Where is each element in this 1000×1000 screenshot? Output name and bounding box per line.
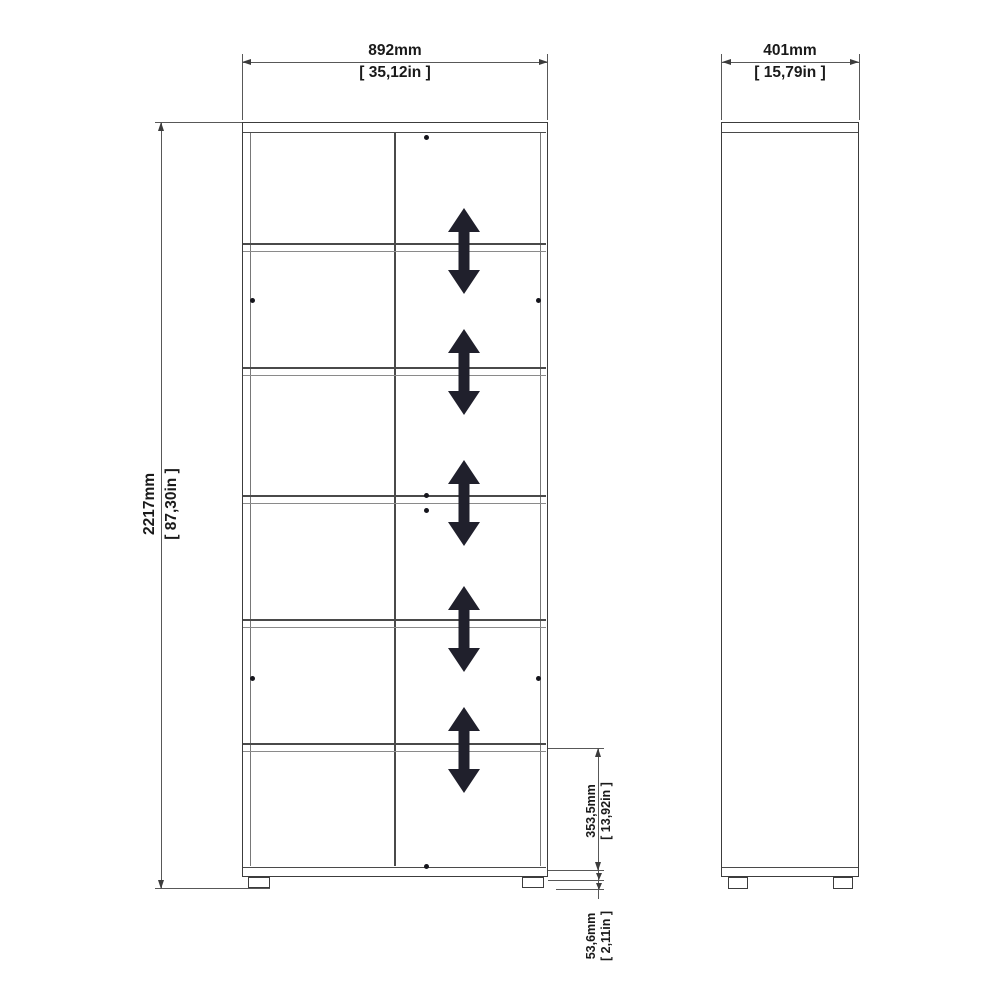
height-label: 2217mm [ 87,30in ] (139, 468, 183, 540)
shelf-line (243, 743, 546, 745)
adjustable-shelf-arrow-icon (446, 460, 482, 546)
dimension-line (722, 62, 859, 63)
shelf-line (243, 251, 546, 252)
extension-line (155, 122, 242, 123)
shelf-line (243, 375, 546, 376)
side-view-outline (721, 122, 859, 877)
height-in-label: [ 87,30in ] (161, 468, 183, 540)
front-bottom-panel-line (243, 867, 546, 869)
shelf-line (243, 243, 546, 245)
shelf-pin-dot (424, 864, 429, 869)
depth-in-label: [ 15,79in ] (690, 65, 890, 81)
dimension-arrowhead (595, 862, 601, 871)
shelf-line (243, 627, 546, 628)
width-in-label: [ 35,12in ] (295, 65, 495, 81)
shelf-line (243, 619, 546, 621)
dimension-line (242, 62, 548, 63)
shelf-pin-dot (250, 676, 255, 681)
side-back-foot (833, 877, 853, 889)
dimension-arrowhead (539, 59, 548, 65)
dimension-drawing: 892mm [ 35,12in ] 401mm [ 15,79in ] 2217… (0, 0, 1000, 1000)
shelf-pin-dot (424, 493, 429, 498)
side-top-panel-line (722, 132, 858, 133)
dimension-arrowhead (595, 748, 601, 757)
shelf-spacing-in-label: [ 13,92in ] (599, 782, 614, 840)
shelf-pin-dot (424, 508, 429, 513)
shelf-line (243, 751, 546, 752)
depth-mm-label: 401mm (690, 43, 890, 59)
shelf-line (243, 503, 546, 504)
dimension-arrowhead (158, 880, 164, 889)
shelf-pin-dot (250, 298, 255, 303)
adjustable-shelf-arrow-icon (446, 586, 482, 672)
dimension-arrowhead (596, 873, 602, 880)
adjustable-shelf-arrow-icon (446, 208, 482, 294)
shelf-line (243, 495, 546, 497)
shelf-line (243, 367, 546, 369)
shelf-spacing-label: 353,5mm [ 13,92in ] (584, 782, 614, 840)
extension-line (155, 888, 270, 889)
base-height-label: 53,6mm [ 2,11in ] (584, 911, 614, 961)
dimension-arrowhead (242, 59, 251, 65)
base-height-mm-label: 53,6mm (584, 911, 599, 961)
shelf-spacing-mm-label: 353,5mm (584, 782, 599, 840)
front-left-foot (248, 877, 270, 888)
side-front-foot (728, 877, 748, 889)
dimension-arrowhead (596, 883, 602, 890)
dimension-arrowhead (158, 122, 164, 131)
adjustable-shelf-arrow-icon (446, 707, 482, 793)
shelf-pin-dot (424, 135, 429, 140)
front-right-foot (522, 877, 544, 888)
width-mm-label: 892mm (295, 43, 495, 59)
shelf-pin-dot (536, 676, 541, 681)
base-height-in-label: [ 2,11in ] (599, 911, 614, 961)
adjustable-shelf-arrow-icon (446, 329, 482, 415)
shelf-pin-dot (536, 298, 541, 303)
height-mm-label: 2217mm (139, 468, 161, 540)
side-bottom-panel-line (722, 867, 858, 869)
